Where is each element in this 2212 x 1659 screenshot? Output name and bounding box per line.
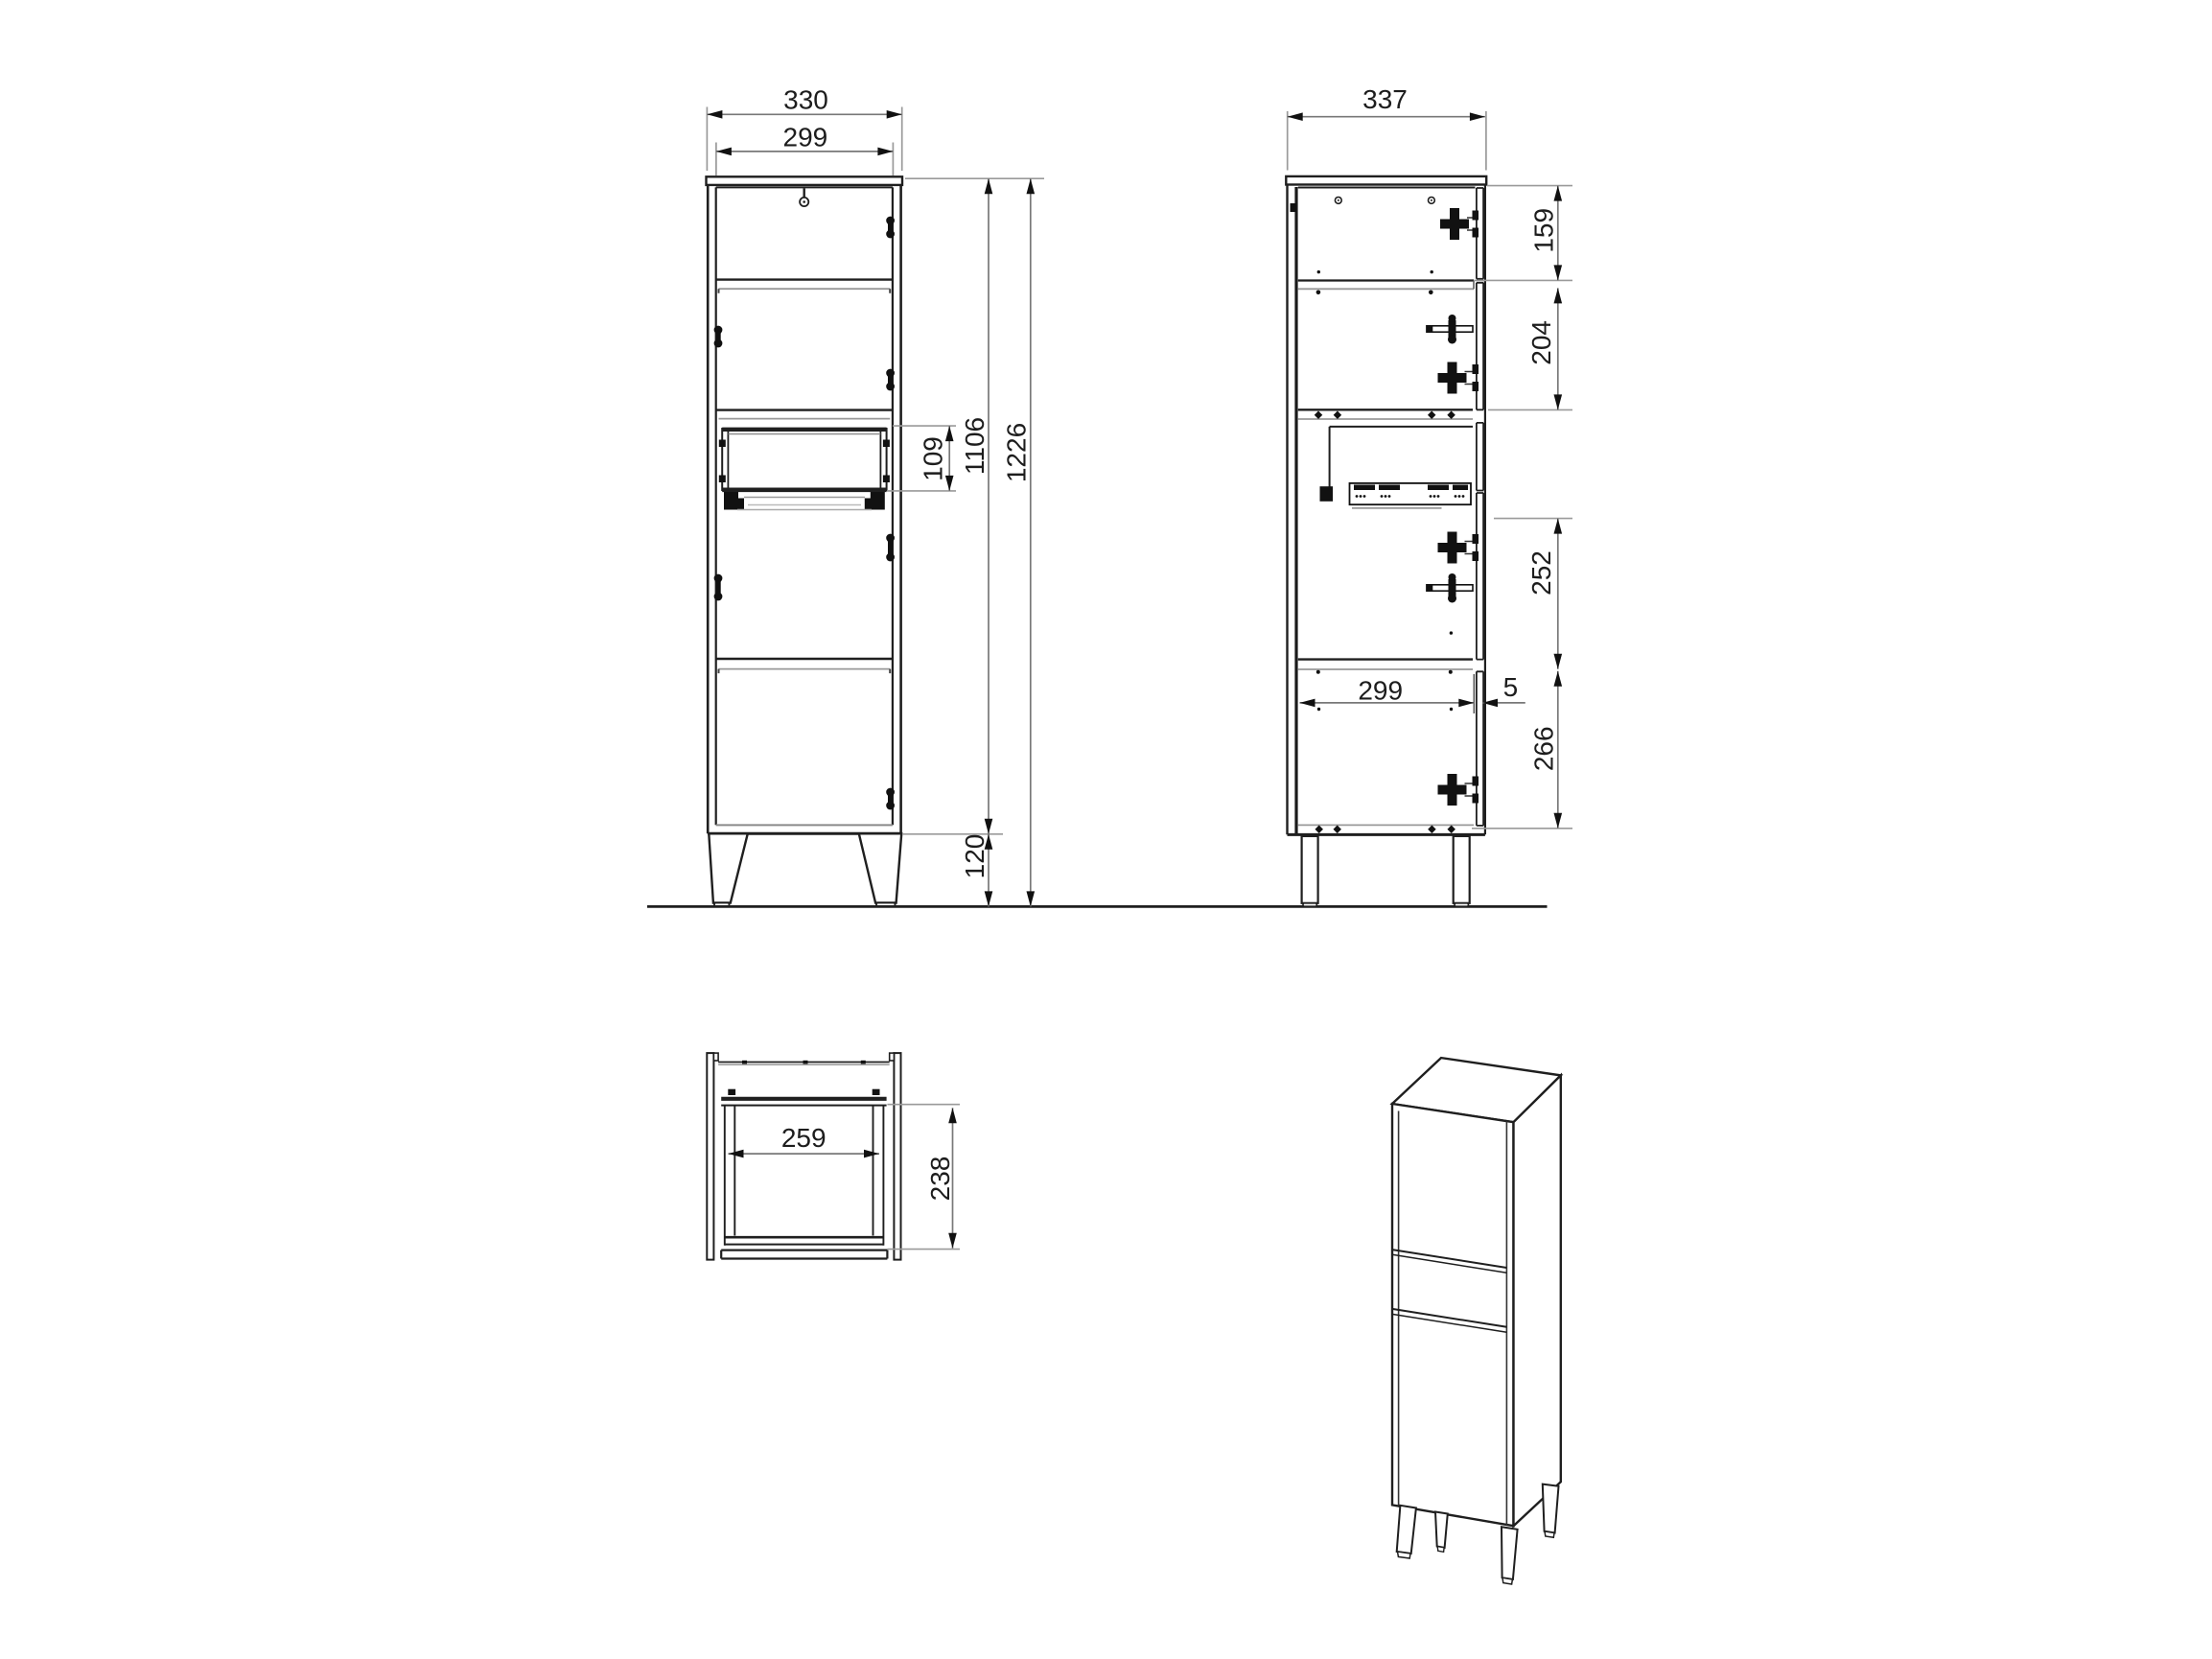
svg-text:1226: 1226 (1002, 423, 1032, 482)
svg-text:252: 252 (1526, 550, 1556, 596)
svg-text:109: 109 (919, 436, 948, 481)
svg-text:1106: 1106 (960, 417, 990, 475)
svg-text:337: 337 (1362, 84, 1408, 114)
svg-text:330: 330 (783, 85, 828, 115)
svg-text:299: 299 (783, 123, 828, 152)
svg-text:238: 238 (925, 1157, 955, 1202)
svg-text:299: 299 (1358, 675, 1403, 705)
svg-text:204: 204 (1526, 320, 1556, 365)
svg-text:5: 5 (1503, 672, 1519, 702)
svg-text:259: 259 (781, 1123, 827, 1153)
svg-text:120: 120 (960, 834, 990, 879)
svg-text:159: 159 (1529, 208, 1559, 253)
svg-text:266: 266 (1528, 726, 1558, 771)
